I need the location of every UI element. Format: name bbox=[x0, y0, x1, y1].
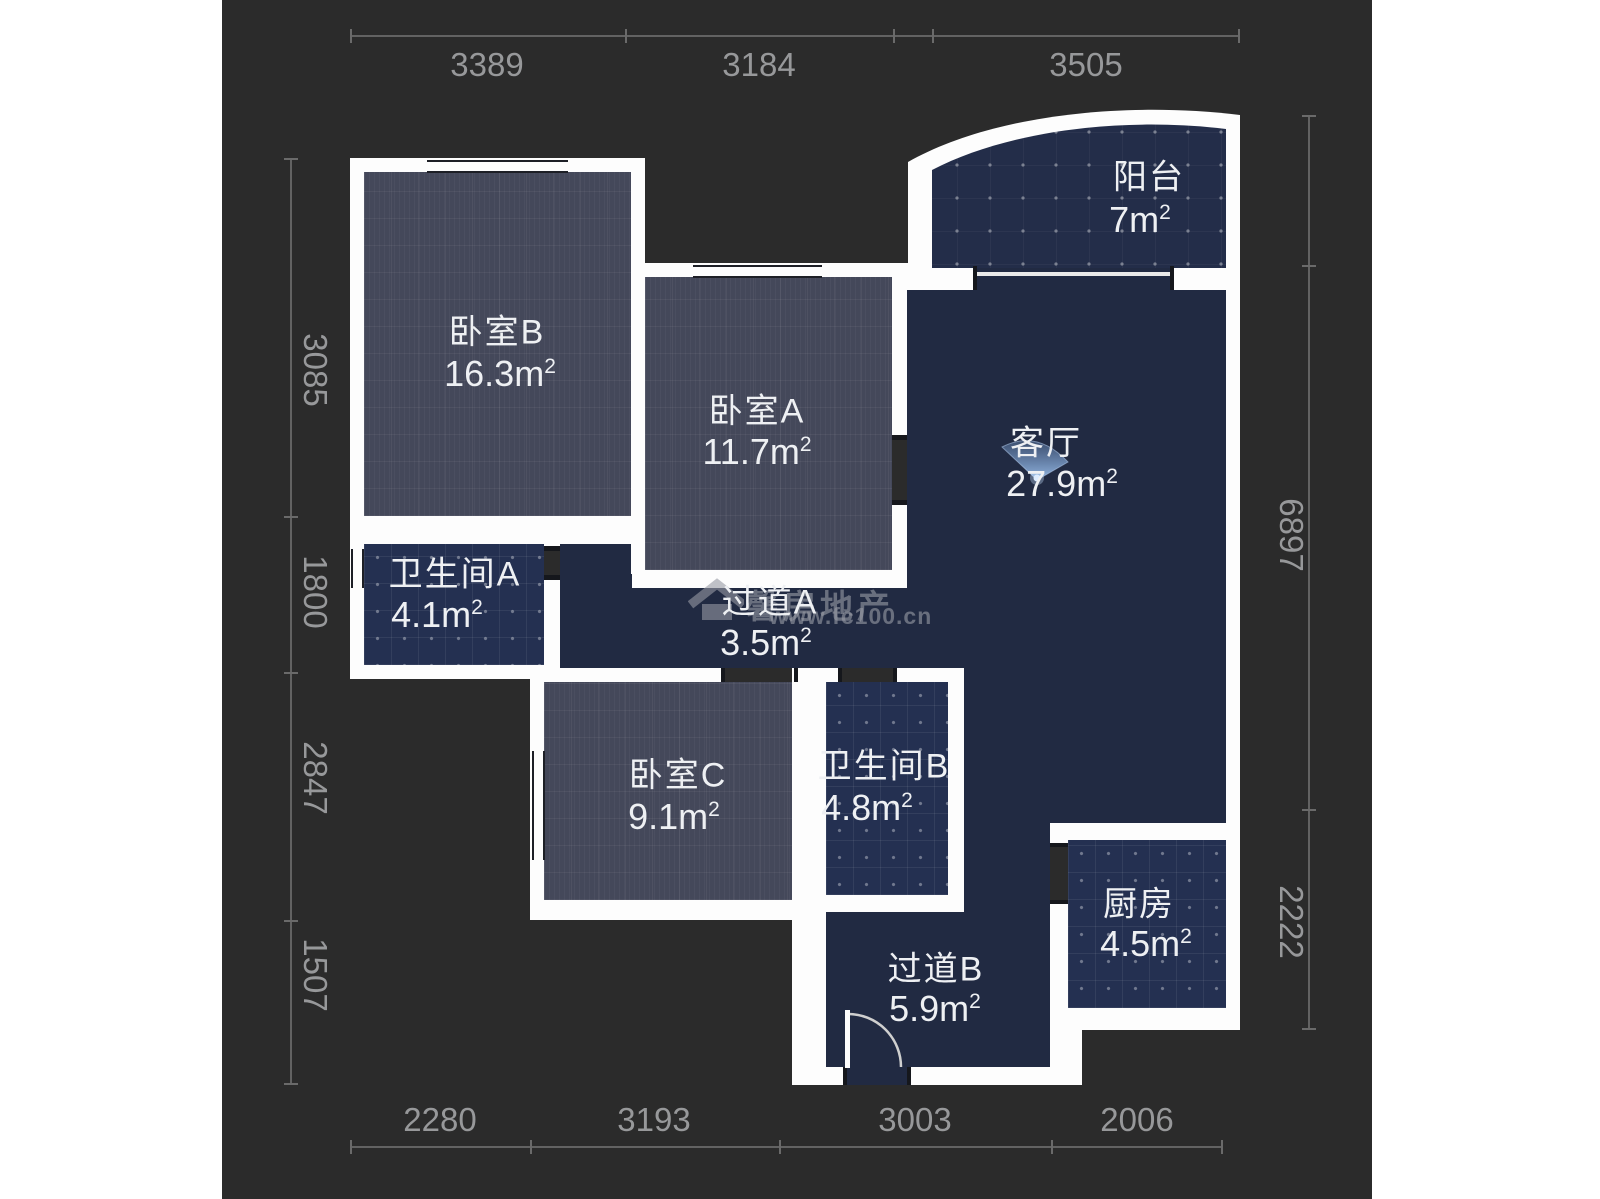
dim-tick bbox=[284, 516, 298, 518]
room-area-bedroom-b: 16.3m2 bbox=[444, 353, 556, 395]
wall bbox=[530, 900, 800, 920]
door-frame bbox=[1050, 900, 1068, 904]
door-frame bbox=[973, 266, 977, 290]
dim-bottom-4: 2006 bbox=[1100, 1101, 1173, 1139]
balcony-door-sill bbox=[977, 272, 1170, 276]
room-area-balcony: 7m2 bbox=[1109, 199, 1171, 241]
balcony-opening bbox=[977, 268, 1170, 290]
room-label-kitchen: 厨房 bbox=[1103, 877, 1175, 926]
dim-tick bbox=[1302, 265, 1316, 267]
wall bbox=[350, 158, 364, 679]
dim-tick bbox=[893, 29, 895, 43]
wall bbox=[544, 575, 560, 679]
room-label-bathroom-b: 卫生间B bbox=[818, 739, 951, 788]
dim-tick bbox=[1302, 115, 1316, 117]
dim-tick bbox=[284, 920, 298, 922]
dim-tick bbox=[932, 29, 934, 43]
dim-left-1: 3085 bbox=[296, 333, 334, 406]
room-label-hallway-a: 过道A bbox=[722, 575, 819, 624]
dim-bottom-2: 3193 bbox=[617, 1101, 690, 1139]
dim-tick bbox=[350, 1140, 352, 1154]
room-area-living-room: 27.9m2 bbox=[1006, 463, 1118, 505]
window-bedroom-c bbox=[532, 751, 545, 860]
dim-tick bbox=[284, 672, 298, 674]
room-area-kitchen: 4.5m2 bbox=[1100, 923, 1192, 965]
room-label-living-room: 客厅 bbox=[1010, 416, 1082, 465]
dim-tick bbox=[1302, 1028, 1316, 1030]
wall bbox=[631, 158, 645, 574]
wall bbox=[1050, 1030, 1082, 1085]
wall bbox=[530, 668, 725, 682]
dim-tick bbox=[284, 158, 298, 160]
room-area-bedroom-a: 11.7m2 bbox=[702, 431, 811, 473]
wall bbox=[1050, 823, 1240, 840]
window-bedroom-a bbox=[693, 265, 822, 278]
door-frame bbox=[794, 668, 798, 682]
door-frame bbox=[893, 668, 897, 682]
dim-tick bbox=[779, 1140, 781, 1154]
wall bbox=[350, 665, 560, 679]
balcony-graphic bbox=[870, 85, 1260, 300]
door-frame bbox=[1170, 266, 1174, 290]
dim-tick bbox=[1238, 29, 1240, 43]
dim-top-3: 3505 bbox=[1049, 46, 1122, 84]
wall bbox=[350, 516, 645, 544]
dim-top-2: 3184 bbox=[722, 46, 795, 84]
dim-tick bbox=[530, 1140, 532, 1154]
door-frame bbox=[838, 668, 842, 682]
dim-top-1: 3389 bbox=[450, 46, 523, 84]
room-area-bathroom-b: 4.8m2 bbox=[821, 787, 913, 829]
room-label-balcony: 阳台 bbox=[1113, 150, 1185, 199]
living-room-floor-lower bbox=[964, 672, 1226, 823]
dim-tick bbox=[1302, 809, 1316, 811]
door-frame bbox=[721, 668, 725, 682]
wall bbox=[1050, 1008, 1240, 1030]
room-area-hallway-a: 3.5m2 bbox=[720, 622, 812, 664]
door-frame bbox=[1050, 843, 1068, 847]
door-frame bbox=[544, 575, 560, 580]
door-frame bbox=[892, 435, 907, 440]
room-label-bathroom-a: 卫生间A bbox=[389, 547, 522, 596]
window-bathroom-a bbox=[351, 549, 364, 588]
window-bedroom-b bbox=[427, 160, 568, 173]
room-label-bedroom-c: 卧室C bbox=[629, 748, 728, 797]
dim-left-3: 2847 bbox=[296, 741, 334, 814]
dim-tick bbox=[625, 29, 627, 43]
dim-line-top bbox=[350, 35, 1240, 37]
dim-line-bottom bbox=[350, 1146, 1223, 1148]
dim-right-1: 6897 bbox=[1272, 498, 1310, 571]
dim-left-4: 1507 bbox=[296, 938, 334, 1011]
room-area-bedroom-c: 9.1m2 bbox=[628, 796, 720, 838]
room-area-bathroom-a: 4.1m2 bbox=[391, 594, 483, 636]
dim-tick bbox=[350, 29, 352, 43]
floorplan-image: 馨房地产 www.fc100.cn 卧室B 16.3m2 卧室A 11.7m2 … bbox=[0, 0, 1600, 1199]
dim-bottom-3: 3003 bbox=[878, 1101, 951, 1139]
room-label-hallway-b: 过道B bbox=[888, 942, 985, 991]
dim-tick bbox=[284, 1083, 298, 1085]
dim-tick bbox=[1051, 1140, 1053, 1154]
room-label-bedroom-a: 卧室A bbox=[709, 384, 806, 433]
dim-right-2: 2222 bbox=[1272, 885, 1310, 958]
dim-tick bbox=[1221, 1140, 1223, 1154]
door-leaf bbox=[845, 1010, 850, 1068]
door-frame bbox=[544, 546, 560, 551]
dim-left-2: 1800 bbox=[296, 555, 334, 628]
wall bbox=[948, 668, 964, 895]
dim-bottom-1: 2280 bbox=[403, 1101, 476, 1139]
door-frame bbox=[892, 500, 907, 505]
room-area-hallway-b: 5.9m2 bbox=[889, 988, 981, 1030]
room-label-bedroom-b: 卧室B bbox=[449, 305, 546, 354]
dim-line-left bbox=[290, 158, 292, 1085]
